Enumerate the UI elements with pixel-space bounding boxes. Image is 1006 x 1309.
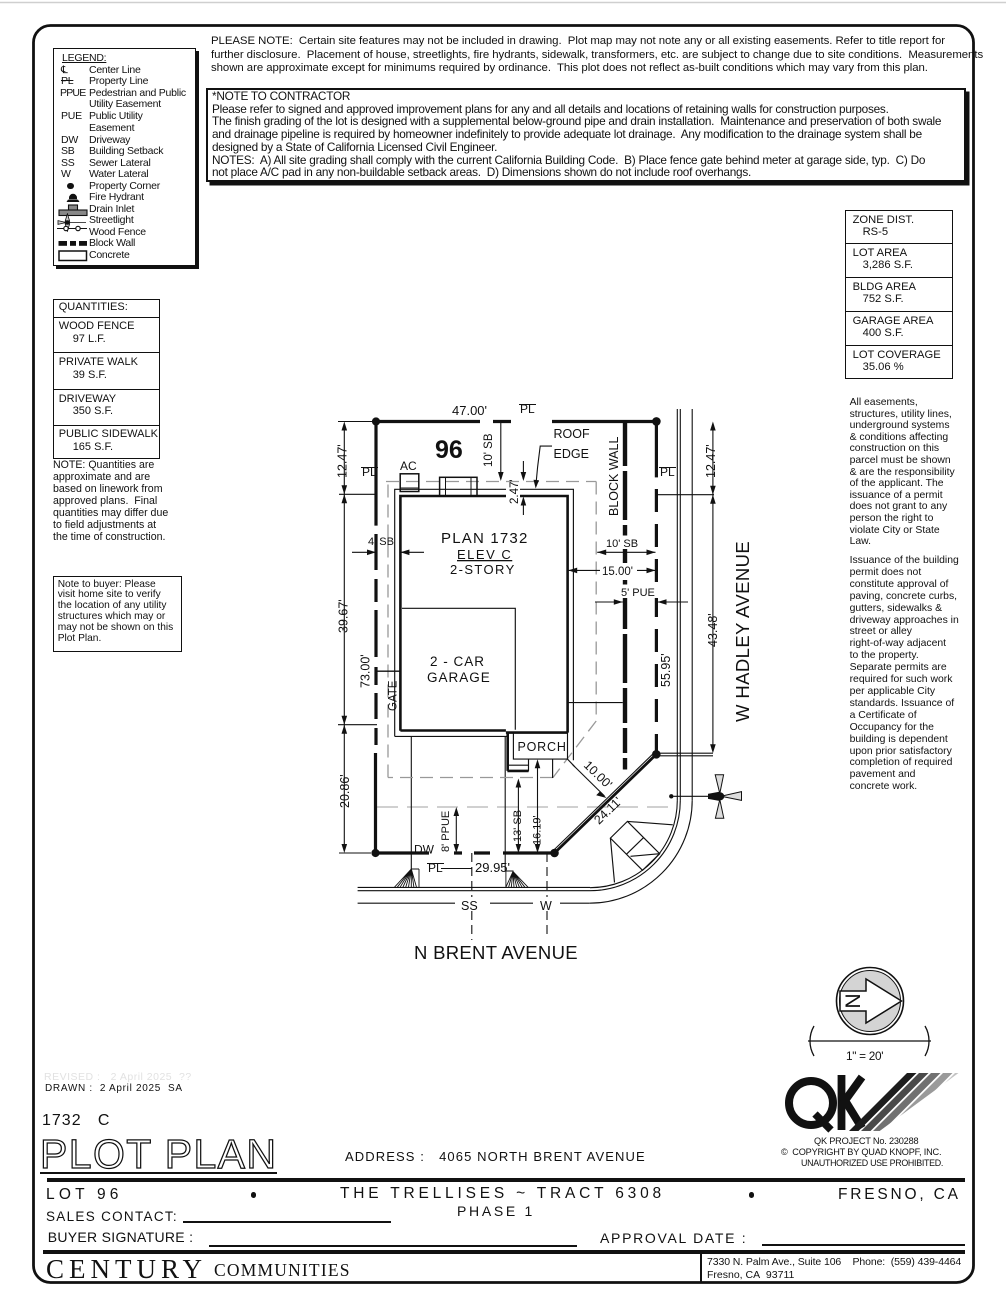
svg-text:PORCH: PORCH (518, 740, 567, 754)
svg-text:55.95': 55.95' (659, 653, 673, 687)
svg-text:73.00': 73.00' (359, 654, 373, 688)
svg-text:4' SB: 4' SB (368, 536, 394, 548)
svg-text:15.00': 15.00' (602, 566, 633, 578)
svg-text:8' PPUE: 8' PPUE (440, 811, 452, 852)
svg-text:GARAGE: GARAGE (427, 670, 491, 685)
svg-text:39.67': 39.67' (337, 599, 351, 633)
svg-text:DW: DW (414, 843, 435, 857)
svg-text:5' PUE: 5' PUE (621, 587, 655, 599)
svg-text:2-STORY: 2-STORY (450, 562, 516, 577)
svg-text:GATE: GATE (388, 680, 400, 711)
svg-text:29.95': 29.95' (475, 860, 510, 875)
svg-text:N: N (841, 993, 864, 1008)
svg-text:ELEV C: ELEV C (457, 547, 512, 562)
svg-text:EDGE: EDGE (554, 447, 589, 461)
svg-text:1" = 20': 1" = 20' (846, 1049, 883, 1063)
svg-text:10.00': 10.00' (581, 758, 615, 791)
svg-text:N BRENT AVENUE: N BRENT AVENUE (414, 942, 578, 963)
svg-text:ROOF: ROOF (554, 427, 590, 441)
svg-text:SS: SS (461, 899, 478, 913)
svg-text:10' SB: 10' SB (483, 433, 495, 467)
svg-text:12.47': 12.47' (336, 444, 350, 478)
svg-text:20.86': 20.86' (338, 774, 352, 808)
svg-text:16.19': 16.19' (532, 815, 544, 845)
svg-text:BLOCK WALL: BLOCK WALL (607, 437, 621, 516)
svg-text:47.00': 47.00' (452, 403, 487, 418)
svg-text:2 - CAR: 2 - CAR (430, 654, 485, 669)
svg-text:12.47': 12.47' (704, 444, 718, 478)
svg-text:13' SB: 13' SB (512, 810, 524, 842)
svg-text:AC: AC (400, 459, 417, 473)
svg-text:W: W (540, 899, 552, 913)
svg-text:W HADLEY AVENUE: W HADLEY AVENUE (732, 541, 753, 722)
svg-text:96: 96 (435, 436, 463, 464)
svg-text:43.48': 43.48' (706, 613, 720, 647)
svg-text:10' SB: 10' SB (606, 538, 638, 550)
svg-text:PLAN 1732: PLAN 1732 (441, 530, 529, 547)
svg-text:2.47': 2.47' (509, 479, 521, 504)
